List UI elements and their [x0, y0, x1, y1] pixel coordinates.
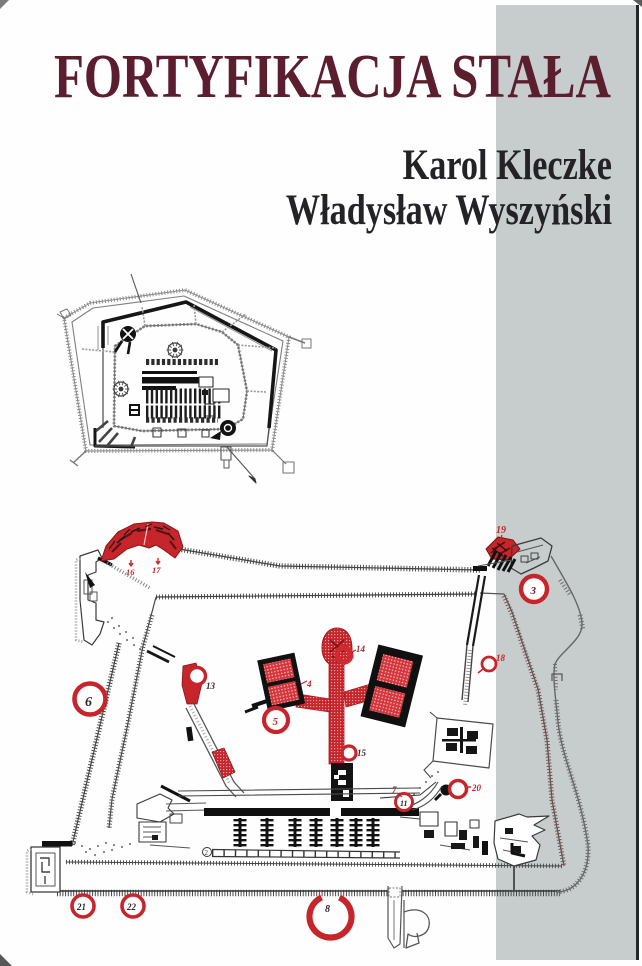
- svg-text:7: 7: [392, 785, 397, 795]
- svg-text:18: 18: [496, 653, 506, 663]
- svg-text:17: 17: [152, 565, 161, 575]
- svg-text:8: 8: [325, 904, 330, 915]
- svg-text:5: 5: [273, 716, 279, 728]
- svg-text:16: 16: [126, 567, 135, 577]
- svg-text:14: 14: [356, 644, 366, 654]
- svg-text:3: 3: [530, 585, 537, 597]
- svg-text:15: 15: [357, 748, 367, 758]
- svg-text:21: 21: [76, 902, 86, 912]
- svg-text:11: 11: [400, 799, 408, 808]
- svg-text:19: 19: [496, 525, 506, 536]
- svg-text:4: 4: [306, 679, 312, 689]
- svg-text:6: 6: [85, 695, 92, 710]
- svg-text:13: 13: [206, 681, 216, 691]
- svg-text:2: 2: [205, 849, 209, 857]
- svg-text:20: 20: [471, 783, 482, 793]
- svg-text:22: 22: [126, 902, 137, 912]
